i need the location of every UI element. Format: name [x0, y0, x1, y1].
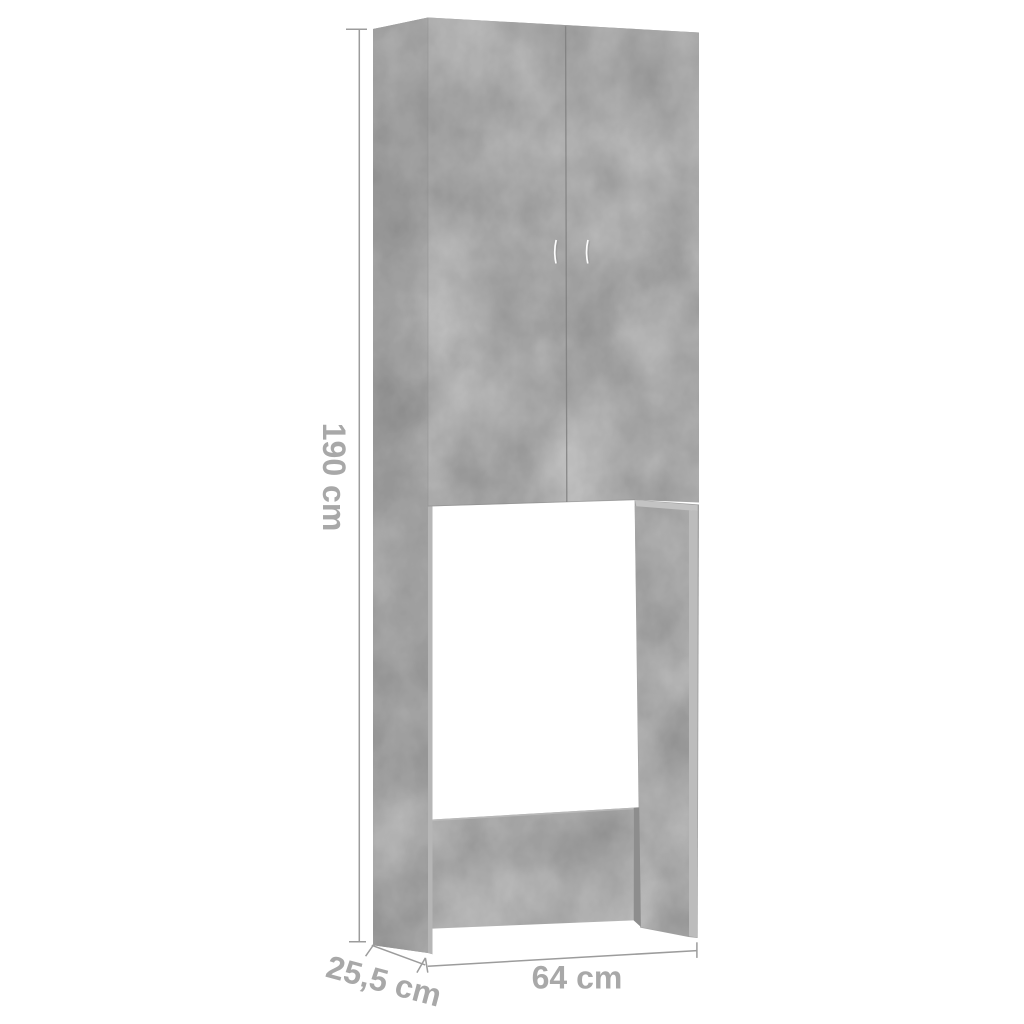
- svg-text:64 cm: 64 cm: [532, 960, 623, 996]
- svg-text:190 cm: 190 cm: [316, 423, 352, 532]
- svg-text:25,5 cm: 25,5 cm: [323, 948, 446, 1013]
